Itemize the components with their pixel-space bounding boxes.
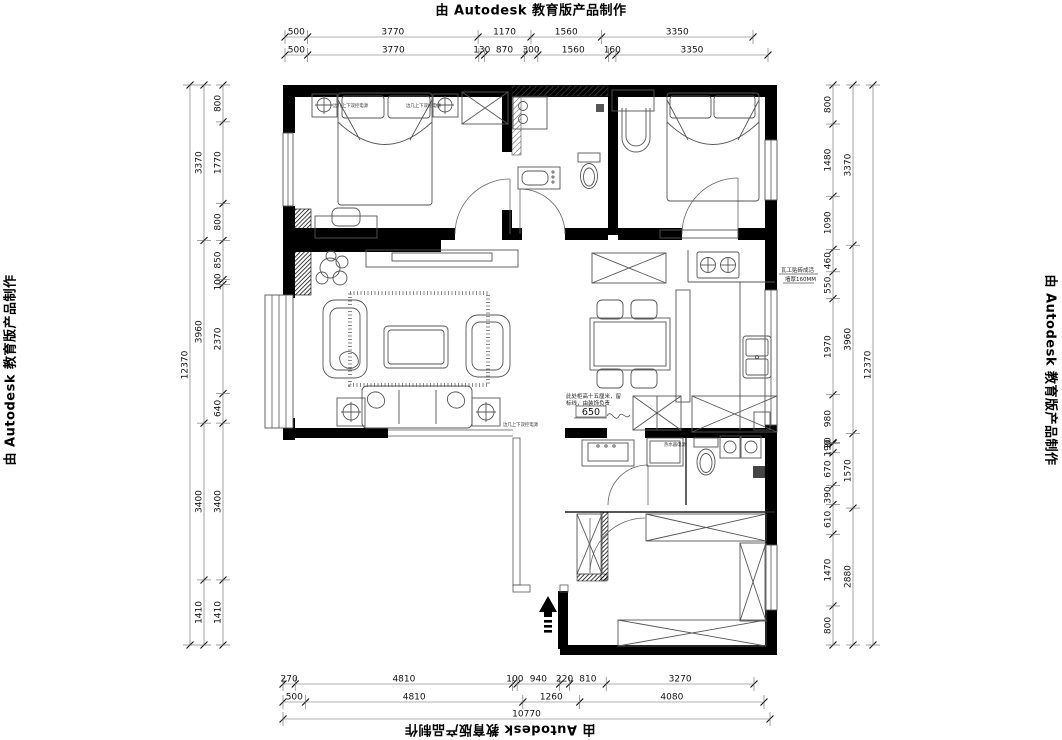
kitchen-note-line2: 墙厚160MM: [785, 275, 816, 283]
plant-icon: [316, 251, 348, 285]
dim-right-inner: 8001480109046055019709802019067039061014…: [824, 82, 841, 649]
bay-window-living: [265, 295, 293, 428]
kitchen-lower-cabinet: [692, 396, 777, 432]
side-table-left: [337, 398, 365, 426]
bedside-lamp-icon: [315, 96, 333, 114]
dim-label: 940: [530, 675, 547, 685]
armchair-left: [323, 300, 367, 378]
furniture: [312, 90, 777, 646]
dim-label: 130: [473, 46, 490, 56]
dim-label: 3770: [382, 46, 405, 56]
dim-bottom-row2: 500481012604080: [280, 693, 768, 710]
dim-label: 4080: [660, 693, 683, 703]
dim-label: 1560: [562, 46, 585, 56]
toilet-bathroom2: [694, 438, 718, 475]
dim-label: 800: [824, 96, 834, 113]
dim-label: 550: [824, 276, 834, 293]
coffee-table: [384, 326, 448, 368]
door-bedroom1: [455, 179, 510, 234]
dim-label: 190: [824, 439, 834, 456]
tv-console: [366, 250, 518, 267]
bedroom1-bed: [338, 93, 432, 205]
dim-label: 500: [288, 28, 305, 38]
dim-label: 4810: [403, 693, 426, 703]
dining-cabinet: [592, 253, 666, 283]
dim-label: 3770: [381, 28, 404, 38]
dim-label: 1410: [195, 601, 205, 624]
dim-label: 3960: [195, 320, 205, 343]
dim-right-outer: 12370: [864, 82, 881, 649]
dim-label: 12370: [181, 350, 191, 379]
dim-label: 500: [286, 693, 303, 703]
dim-label: 100: [214, 273, 224, 290]
dim-label: 390: [824, 486, 834, 503]
floor-drain-icon: [596, 104, 604, 112]
dim-label: 500: [288, 46, 305, 56]
dim-label: 1260: [540, 693, 563, 703]
entry-arrow-icon: [539, 596, 557, 633]
dim-label: 3400: [195, 490, 205, 513]
dim-label: 980: [824, 410, 834, 427]
dim-label: 3270: [669, 675, 692, 685]
window-bedroom3-right: [765, 545, 777, 610]
cabinet-note-line1: 此处柜高十五厘米，留: [566, 392, 622, 400]
dim-left-mid: 3370396034001410: [195, 82, 212, 649]
dim-label: 3350: [681, 46, 704, 56]
wardrobe-right: [740, 543, 766, 621]
dim-label: 10770: [512, 710, 541, 720]
heater-note: 热水器电源: [664, 441, 687, 448]
door-bedroom2: [682, 178, 738, 234]
dim-label: 270: [281, 675, 298, 685]
dim-label: 640: [214, 400, 224, 417]
cabinet-dim-650: 650: [582, 407, 600, 418]
floorplan-drawing: 瓦工贴砖成活 墙厚160MM 此处柜高十五厘米，留 标线，由装饰负责 650 边…: [0, 0, 1062, 740]
dining-table: [590, 318, 670, 370]
wardrobe-top: [646, 514, 766, 541]
dim-label: 800: [214, 95, 224, 112]
dim-label: 12370: [864, 350, 874, 379]
dim-label: 3350: [666, 28, 689, 38]
bedroom2-desk-chair: [612, 90, 654, 152]
dim-label: 1970: [824, 335, 834, 358]
kitchen-note-line1: 瓦工贴砖成活: [781, 266, 815, 274]
dim-label: 1090: [824, 211, 834, 234]
toilet-bathroom1: [578, 153, 600, 189]
dim-label: 160: [604, 46, 621, 56]
dim-label: 300: [522, 46, 539, 56]
dim-label: 610: [824, 511, 834, 528]
dim-label: 1410: [214, 601, 224, 624]
sofa-power-note: 边几上下双控电源: [503, 421, 539, 428]
dining-chairs: [597, 300, 657, 388]
dim-label: 1570: [844, 459, 854, 482]
dim-top-row1: 5003770117015603350: [282, 28, 757, 45]
dim-bottom-row1: 27048101009402208103270: [280, 675, 758, 692]
dim-label: 460: [824, 252, 834, 269]
dim-label: 3400: [214, 490, 224, 513]
dim-bottom-row3: 10770: [280, 710, 774, 727]
window-bedroom2-right: [765, 140, 777, 200]
dim-label: 100: [506, 675, 523, 685]
bedroom2-bed: [667, 93, 759, 201]
sofa: [362, 386, 472, 428]
side-table-right: [472, 398, 500, 426]
dim-label: 220: [556, 675, 573, 685]
door-bathroom1: [520, 189, 565, 234]
dim-label: 800: [824, 617, 834, 634]
dim-label: 1470: [824, 558, 834, 581]
dim-label: 850: [214, 251, 224, 268]
armchair-right: [466, 315, 510, 377]
dim-label: 1560: [555, 28, 578, 38]
window-bedroom1-left: [283, 133, 293, 206]
walls: [283, 85, 777, 655]
dim-label: 1480: [824, 148, 834, 171]
dim-right-mid: 3370396015702880: [844, 82, 861, 649]
bedside-power-note-right: 边几上下双控电源: [406, 102, 442, 109]
dim-label: 810: [579, 675, 596, 685]
washer-dryer-icon: [720, 436, 765, 478]
dim-label: 2880: [844, 565, 854, 588]
stove-icon: [697, 252, 739, 278]
dim-label: 1170: [493, 28, 516, 38]
dim-left-inner: 8001770800850100237064034001410: [214, 82, 231, 649]
bathroom1-vanity: [518, 167, 560, 189]
door-bathroom2: [608, 465, 648, 505]
dim-label: 800: [214, 213, 224, 230]
dim-label: 670: [824, 460, 834, 477]
pipe-shaft: [286, 209, 311, 295]
dim-label: 3370: [844, 153, 854, 176]
cad-floorplan-sheet: 由 Autodesk 教育版产品制作 由 Autodesk 教育版产品制作 由 …: [0, 0, 1062, 740]
dim-label: 3960: [844, 328, 854, 351]
bathroom2-vanity: [582, 440, 634, 466]
dim-label: 870: [496, 46, 513, 56]
dim-top-row2: 500377013087030015601603350: [282, 46, 772, 63]
dim-label: 2370: [214, 327, 224, 350]
bedside-power-note-left: 边几上下双控电源: [333, 102, 369, 109]
dim-label: 4810: [392, 675, 415, 685]
dim-label: 1770: [214, 151, 224, 174]
wardrobe-bottom: [618, 620, 766, 646]
dim-label: 3370: [195, 151, 205, 174]
entry-cabinet: [633, 396, 681, 430]
